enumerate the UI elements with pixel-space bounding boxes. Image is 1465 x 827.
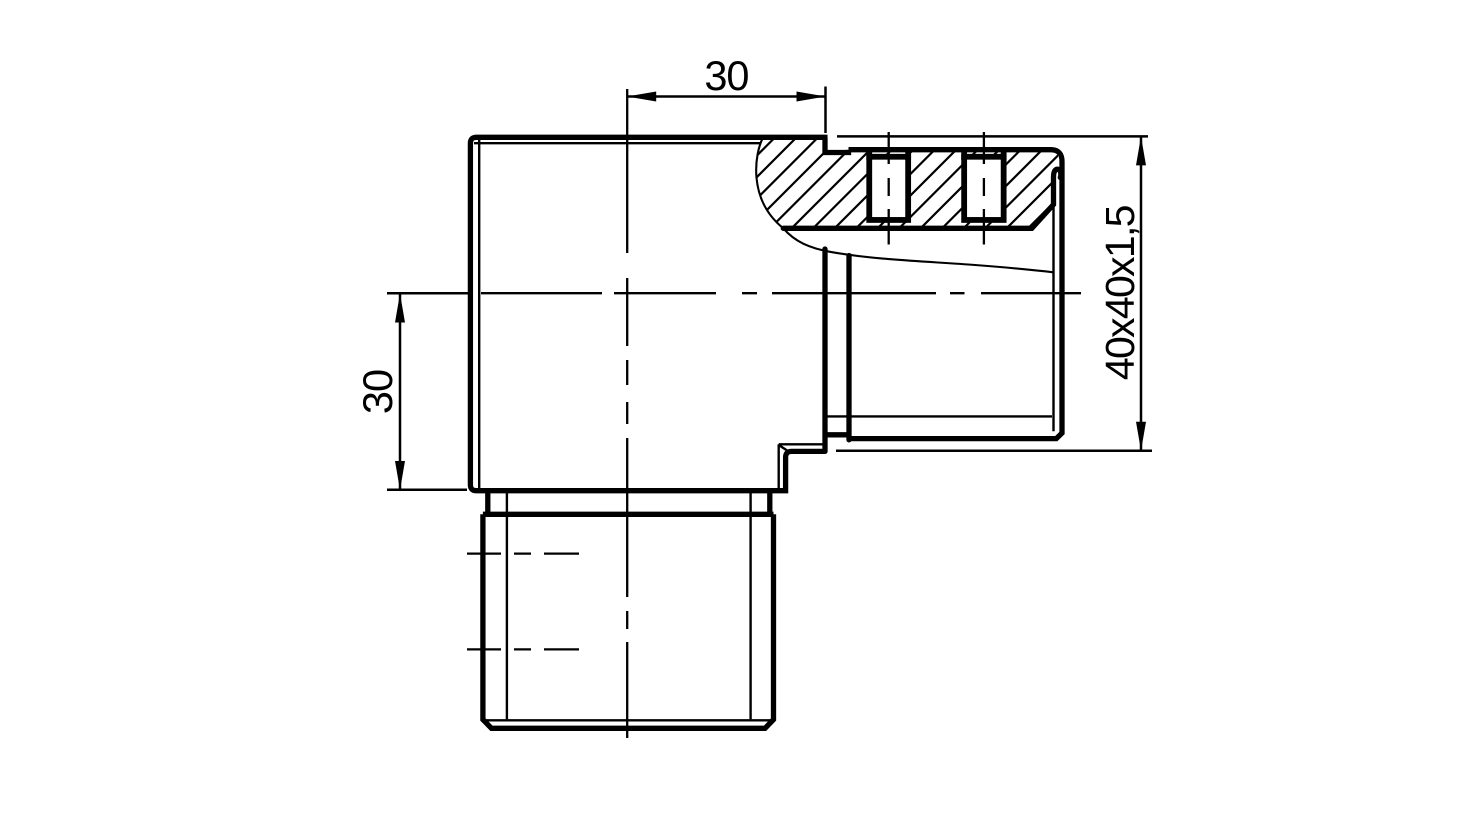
svg-text:30: 30	[704, 52, 748, 99]
svg-text:40x40x1,5: 40x40x1,5	[1097, 205, 1143, 380]
svg-text:30: 30	[354, 370, 401, 414]
